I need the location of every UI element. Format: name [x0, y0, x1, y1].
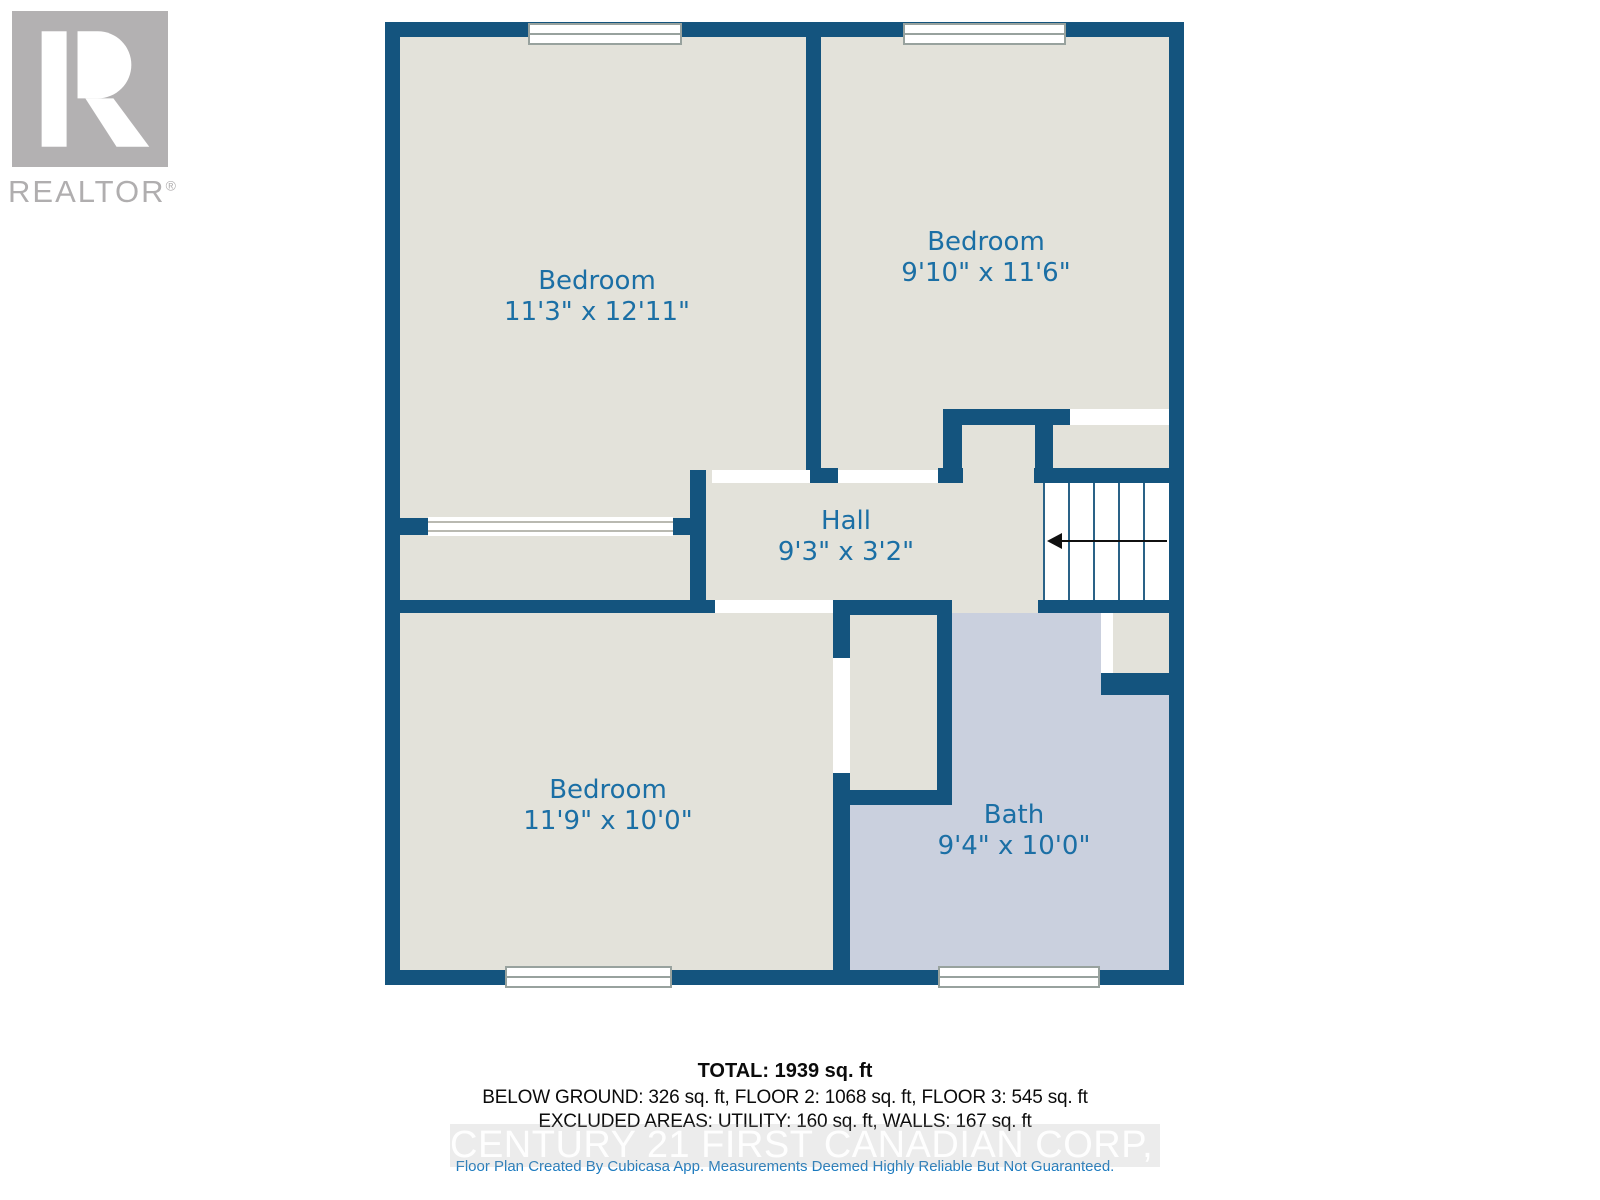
window-pane-line [507, 976, 670, 978]
door-landing [1070, 409, 1169, 425]
room-dimensions: 9'10" x 11'6" [836, 258, 1136, 289]
window-bottom-right [938, 966, 1100, 988]
stair-direction-line [1057, 540, 1167, 542]
wall-hall-left [690, 470, 706, 613]
floor-plan-page: { "branding": { "name": "REALTOR", "reg"… [0, 0, 1600, 1200]
sliding-closet-door [428, 517, 673, 536]
wall-hall-bottom [385, 600, 715, 613]
label-bedroom-top-left: Bedroom 11'3" x 12'11" [447, 266, 747, 328]
floor-areas: BELOW GROUND: 326 sq. ft, FLOOR 2: 1068 … [185, 1087, 1385, 1109]
window-pane-line [530, 33, 680, 35]
door-bedroom-tl [712, 470, 810, 483]
window-pane-line [940, 976, 1098, 978]
window-bottom-left [505, 966, 672, 988]
wall-landing [1053, 409, 1070, 425]
stair-direction-arrow-icon [1047, 533, 1062, 549]
wall-hall-closet-left [943, 409, 962, 483]
wall-below-stairs [1038, 600, 1169, 613]
wall-walkin-left-upper [833, 615, 850, 658]
door-bedroom-tr [838, 470, 938, 483]
room-dimensions: 11'3" x 12'11" [447, 297, 747, 328]
room-name: Bedroom [458, 775, 758, 806]
realtor-r-icon [12, 8, 168, 170]
realtor-text: REALTOR [8, 174, 166, 209]
window-top-right [903, 23, 1066, 45]
room-dimensions: 9'4" x 10'0" [889, 831, 1139, 862]
wall-bedroom-divider [806, 37, 821, 470]
label-bath: Bath 9'4" x 10'0" [889, 800, 1139, 862]
room-name: Hall [721, 506, 971, 537]
room-dimensions: 11'9" x 10'0" [458, 806, 758, 837]
registered-mark: ® [166, 178, 178, 194]
brokerage-watermark: CENTURY 21 FIRST CANADIAN CORP, Brokerag… [450, 1124, 1160, 1167]
wall-bedroom-right-lower [833, 805, 850, 970]
label-bedroom-top-right: Bedroom 9'10" x 11'6" [836, 227, 1136, 289]
staircase [1043, 483, 1169, 600]
realtor-logo [12, 8, 168, 174]
window-pane-line [905, 33, 1064, 35]
door-linen-closet [1101, 613, 1113, 673]
total-area: TOTAL: 1939 sq. ft [185, 1060, 1385, 1083]
wall-walkin-right [937, 615, 952, 805]
wall-walkin-top [833, 600, 952, 615]
wall-post [806, 468, 838, 483]
wall-closet-stub-left [400, 518, 428, 535]
wall-stair-top [1034, 468, 1169, 483]
linen-closet-floor [1113, 613, 1169, 673]
window-top-left [528, 23, 682, 45]
wall-outer-right [1169, 22, 1184, 985]
door-walkin-closet [833, 658, 850, 773]
room-name: Bath [889, 800, 1139, 831]
wall-linen-bottom [1101, 673, 1169, 695]
wall-hall-closet-right [1035, 409, 1053, 483]
room-name: Bedroom [447, 266, 747, 297]
door-bedroom-bl [715, 600, 833, 613]
realtor-wordmark: REALTOR® [8, 174, 228, 210]
room-name: Bedroom [836, 227, 1136, 258]
label-bedroom-bottom-left: Bedroom 11'9" x 10'0" [458, 775, 758, 837]
label-hall: Hall 9'3" x 3'2" [721, 506, 971, 568]
wall-outer-left [385, 22, 400, 985]
room-dimensions: 9'3" x 3'2" [721, 537, 971, 568]
